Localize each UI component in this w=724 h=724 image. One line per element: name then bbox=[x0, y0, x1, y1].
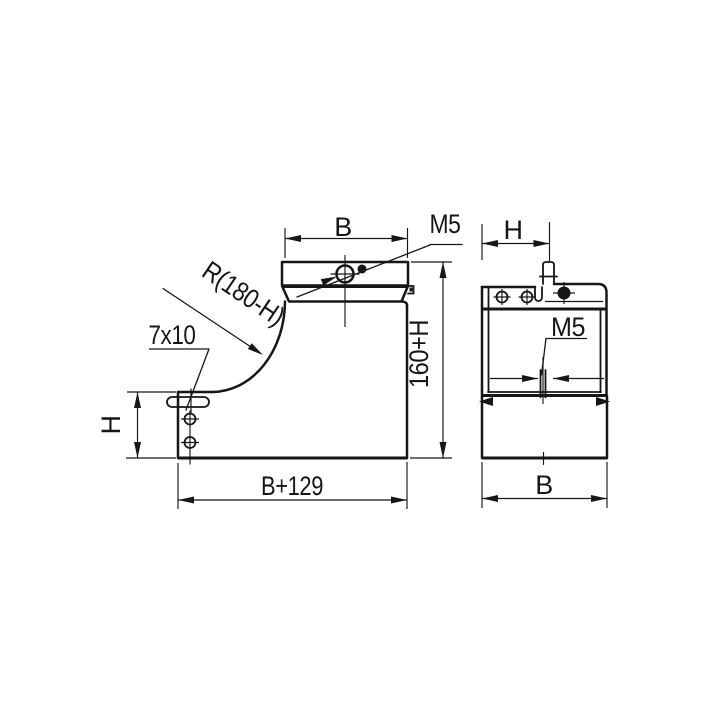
side-dim-b-bottom: B bbox=[482, 462, 607, 508]
front-dim-160h-label: 160+H bbox=[404, 320, 434, 388]
side-lower-box bbox=[479, 396, 610, 466]
front-thread-label-m5: M5 bbox=[430, 209, 461, 239]
front-view: M5 B R(180-H) 7x10 bbox=[96, 209, 462, 509]
front-thread-hole bbox=[331, 255, 360, 327]
side-upper-band bbox=[482, 262, 607, 396]
front-dim-b-label: B bbox=[334, 212, 352, 242]
front-dim-b129-label: B+129 bbox=[261, 471, 323, 501]
front-dim-h-label: H bbox=[96, 416, 126, 435]
leader-dot bbox=[358, 265, 367, 274]
side-stud bbox=[540, 262, 557, 284]
side-dim-h-top: H bbox=[482, 215, 550, 261]
side-dim-b-label: B bbox=[535, 470, 553, 500]
side-dark-hole bbox=[553, 282, 575, 304]
side-m5-dimension: M5 bbox=[490, 312, 604, 382]
side-thread-label-m5: M5 bbox=[551, 312, 585, 342]
side-view: M5 H B bbox=[479, 215, 610, 508]
front-dim-b129: B+129 bbox=[178, 462, 407, 509]
front-hole-markers bbox=[181, 411, 199, 465]
side-hole-markers bbox=[494, 289, 536, 305]
tab-notch bbox=[410, 288, 413, 292]
front-slot-label: 7x10 bbox=[149, 320, 196, 350]
front-lower-body bbox=[178, 305, 407, 459]
side-u-slot bbox=[535, 287, 542, 301]
riser-bracket-drawing: M5 B R(180-H) 7x10 bbox=[0, 0, 724, 724]
radius-arrowhead bbox=[248, 343, 263, 355]
front-thread-leader bbox=[297, 245, 462, 298]
side-dim-h-label: H bbox=[504, 215, 523, 245]
front-dim-h-left: H bbox=[96, 392, 176, 458]
technical-drawing-page: M5 B R(180-H) 7x10 bbox=[0, 0, 724, 724]
front-dim-b-top: B bbox=[285, 212, 408, 258]
